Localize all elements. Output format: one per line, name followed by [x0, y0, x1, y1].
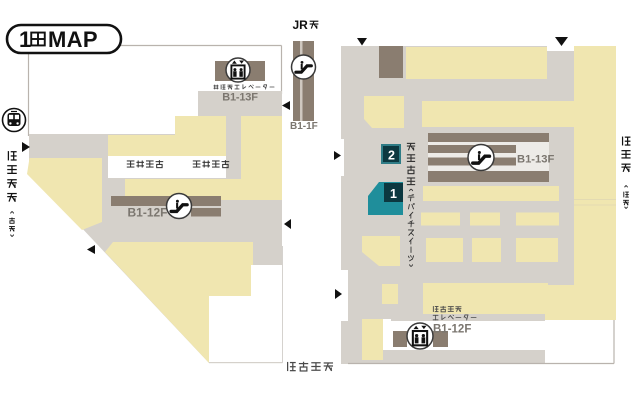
svg-text:MAP: MAP: [48, 27, 98, 52]
svg-text:2: 2: [388, 149, 395, 163]
svg-text:B1-13F: B1-13F: [222, 92, 258, 104]
svg-text:B1-12F: B1-12F: [433, 324, 471, 336]
svg-text:B1-13F: B1-13F: [517, 154, 554, 166]
svg-text:B1-1F: B1-1F: [290, 121, 318, 132]
svg-text:JR: JR: [293, 18, 309, 32]
svg-text:B1-12F: B1-12F: [128, 206, 168, 220]
svg-text:1: 1: [390, 187, 397, 201]
svg-text:1: 1: [19, 27, 31, 52]
